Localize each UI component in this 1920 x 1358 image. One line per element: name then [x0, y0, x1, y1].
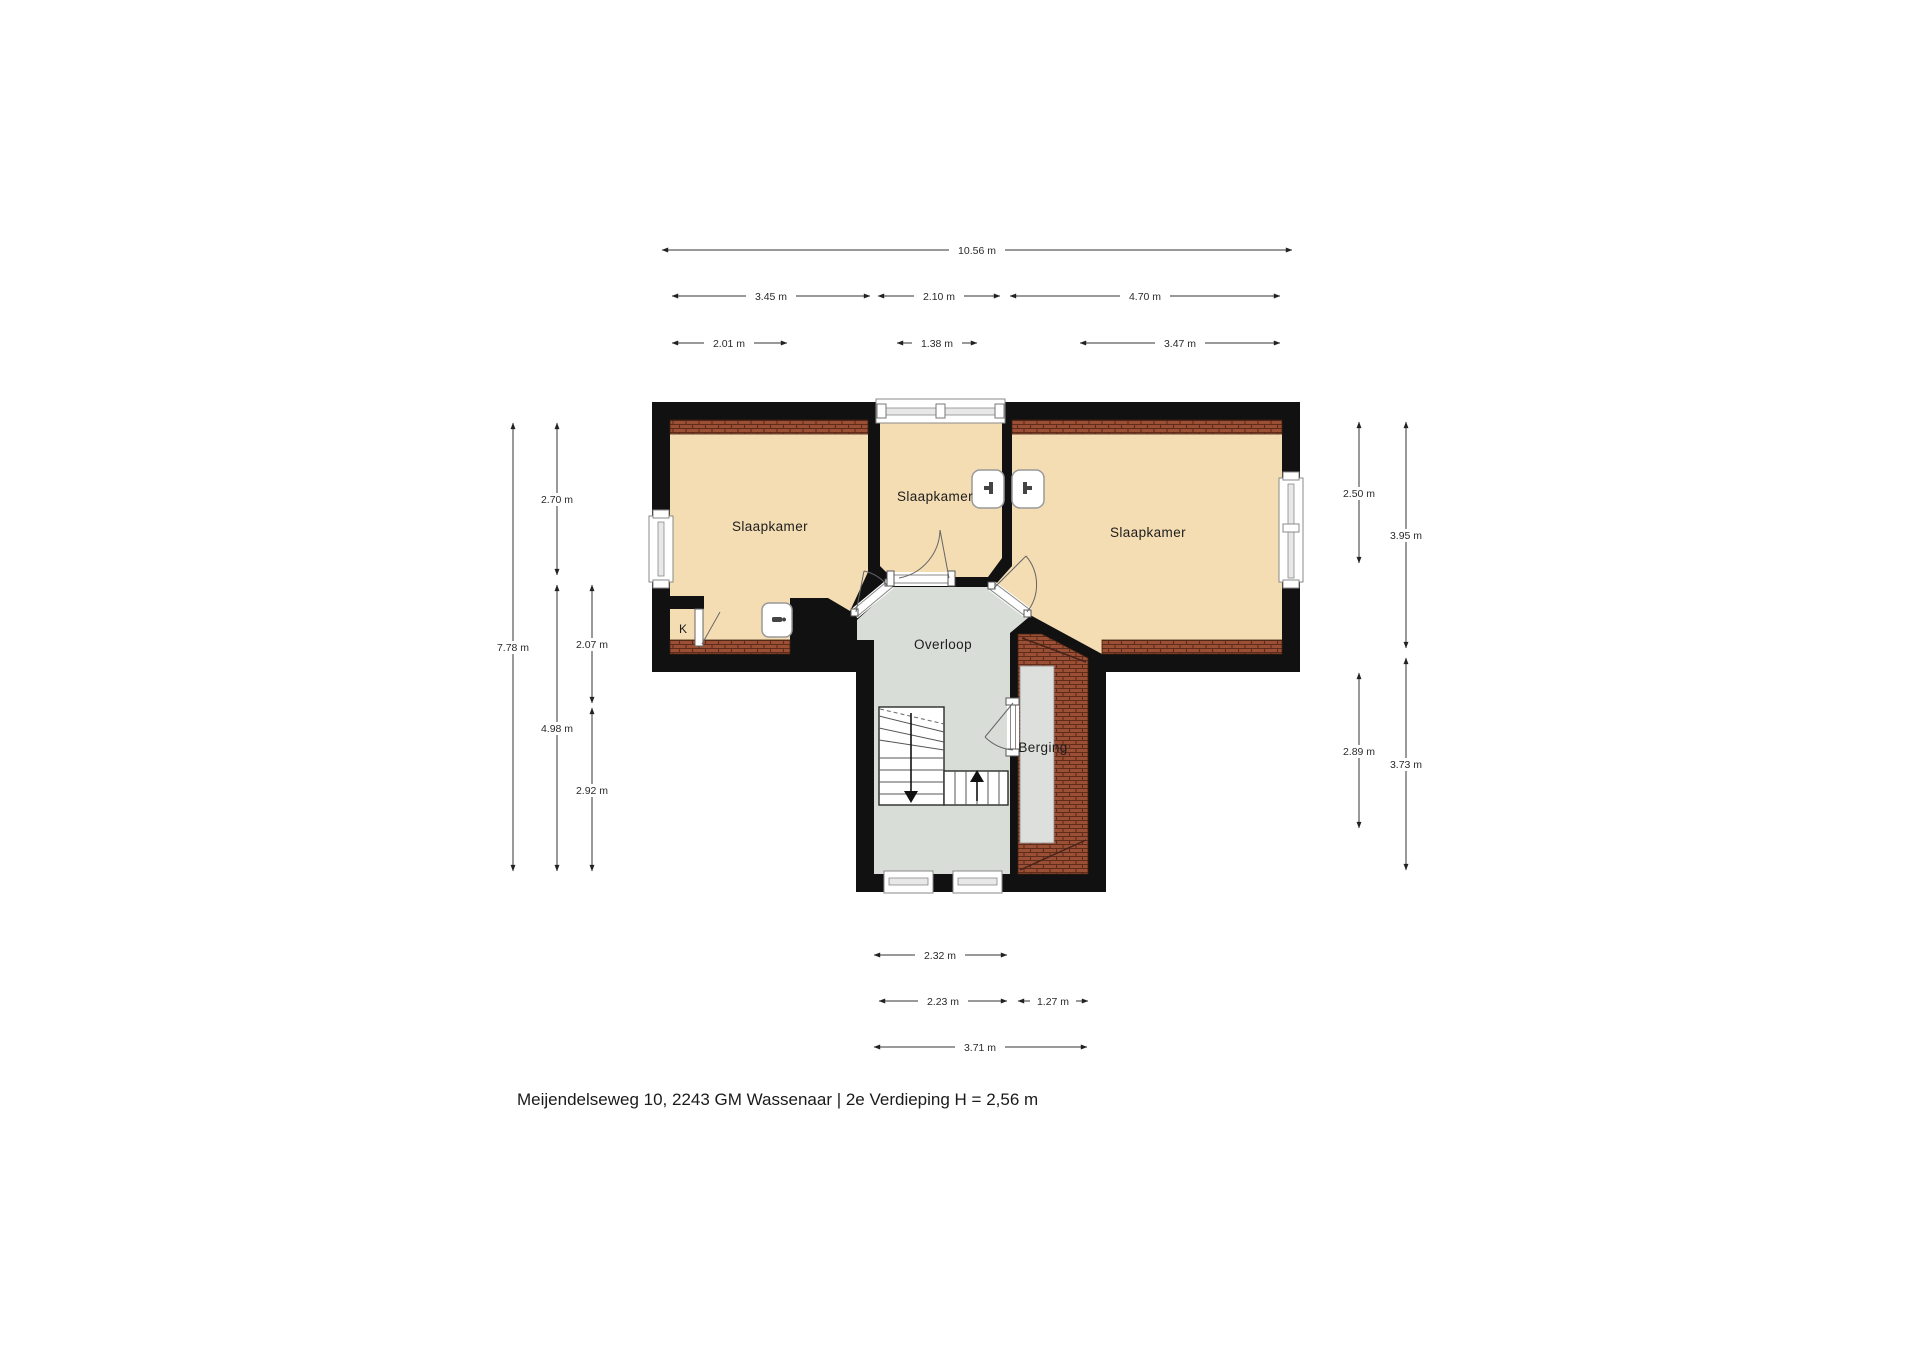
svg-text:2.70 m: 2.70 m	[541, 494, 573, 506]
dim-top-left: 3.45 m	[672, 290, 870, 303]
room-label-landing: Overloop	[914, 637, 972, 652]
svg-text:2.92 m: 2.92 m	[576, 785, 608, 797]
svg-text:4.70 m: 4.70 m	[1129, 291, 1161, 303]
svg-text:3.95 m: 3.95 m	[1390, 530, 1422, 542]
svg-text:3.71 m: 3.71 m	[964, 1042, 996, 1054]
floorplan-caption: Meijendelseweg 10, 2243 GM Wassenaar | 2…	[517, 1090, 1038, 1109]
svg-text:2.50 m: 2.50 m	[1343, 488, 1375, 500]
room-label-closet: K	[679, 622, 687, 636]
dim-left-upper: 2.70 m	[533, 423, 581, 575]
dim-right-inner-upper: 2.50 m	[1335, 422, 1383, 563]
floorplan-canvas: Slaapkamer Slaapkamer Slaapkamer Overloo…	[0, 0, 1920, 1358]
room-label-bedroom-left: Slaapkamer	[732, 519, 808, 534]
svg-text:4.98 m: 4.98 m	[541, 723, 573, 735]
svg-text:10.56 m: 10.56 m	[958, 245, 996, 257]
dim-top-sub-middle: 1.38 m	[897, 337, 977, 350]
window-bottom-left	[884, 871, 933, 893]
dim-top-sub-right: 3.47 m	[1080, 337, 1280, 350]
svg-text:1.27 m: 1.27 m	[1037, 996, 1069, 1008]
svg-text:2.32 m: 2.32 m	[924, 950, 956, 962]
sink-icon-right-bedroom	[1012, 470, 1044, 508]
dim-bottom-total: 3.71 m	[874, 1041, 1087, 1054]
dim-bottom-hall-width: 2.32 m	[874, 949, 1007, 962]
window-top-middle	[876, 399, 1005, 423]
window-bottom-right	[953, 871, 1002, 893]
dim-left-total-height: 7.78 m	[489, 423, 537, 871]
dim-left-sub-upper: 2.07 m	[568, 585, 616, 703]
dim-right-inner-lower: 2.89 m	[1335, 673, 1383, 828]
window-left	[649, 510, 673, 588]
closet-wall	[668, 596, 704, 609]
dim-right-outer-upper: 3.95 m	[1382, 422, 1430, 648]
room-label-storage: Berging	[1018, 740, 1067, 755]
svg-text:3.47 m: 3.47 m	[1164, 338, 1196, 350]
sink-icon-left-bedroom	[762, 603, 792, 637]
dim-right-outer-lower: 3.73 m	[1382, 658, 1430, 870]
dim-top-right: 4.70 m	[1010, 290, 1280, 303]
svg-text:1.38 m: 1.38 m	[921, 338, 953, 350]
floorplan-page: Slaapkamer Slaapkamer Slaapkamer Overloo…	[0, 0, 1920, 1358]
dim-bottom-sub-right: 1.27 m	[1018, 995, 1088, 1008]
dim-total-width: 10.56 m	[662, 244, 1292, 257]
room-label-bedroom-right: Slaapkamer	[1110, 525, 1186, 540]
svg-text:2.01 m: 2.01 m	[713, 338, 745, 350]
svg-text:2.10 m: 2.10 m	[923, 291, 955, 303]
dim-left-lower: 4.98 m	[533, 585, 581, 871]
svg-text:7.78 m: 7.78 m	[497, 642, 529, 654]
svg-text:2.07 m: 2.07 m	[576, 639, 608, 651]
dim-bottom-sub-left: 2.23 m	[879, 995, 1007, 1008]
svg-text:3.45 m: 3.45 m	[755, 291, 787, 303]
sink-icon-middle-bedroom	[972, 470, 1004, 508]
room-label-bedroom-middle: Slaapkamer	[897, 489, 973, 504]
dim-top-middle: 2.10 m	[878, 290, 1000, 303]
svg-text:2.89 m: 2.89 m	[1343, 746, 1375, 758]
svg-text:3.73 m: 3.73 m	[1390, 759, 1422, 771]
closet-door	[695, 609, 703, 646]
svg-text:2.23 m: 2.23 m	[927, 996, 959, 1008]
dim-top-sub-left: 2.01 m	[672, 337, 787, 350]
window-right	[1279, 472, 1303, 588]
